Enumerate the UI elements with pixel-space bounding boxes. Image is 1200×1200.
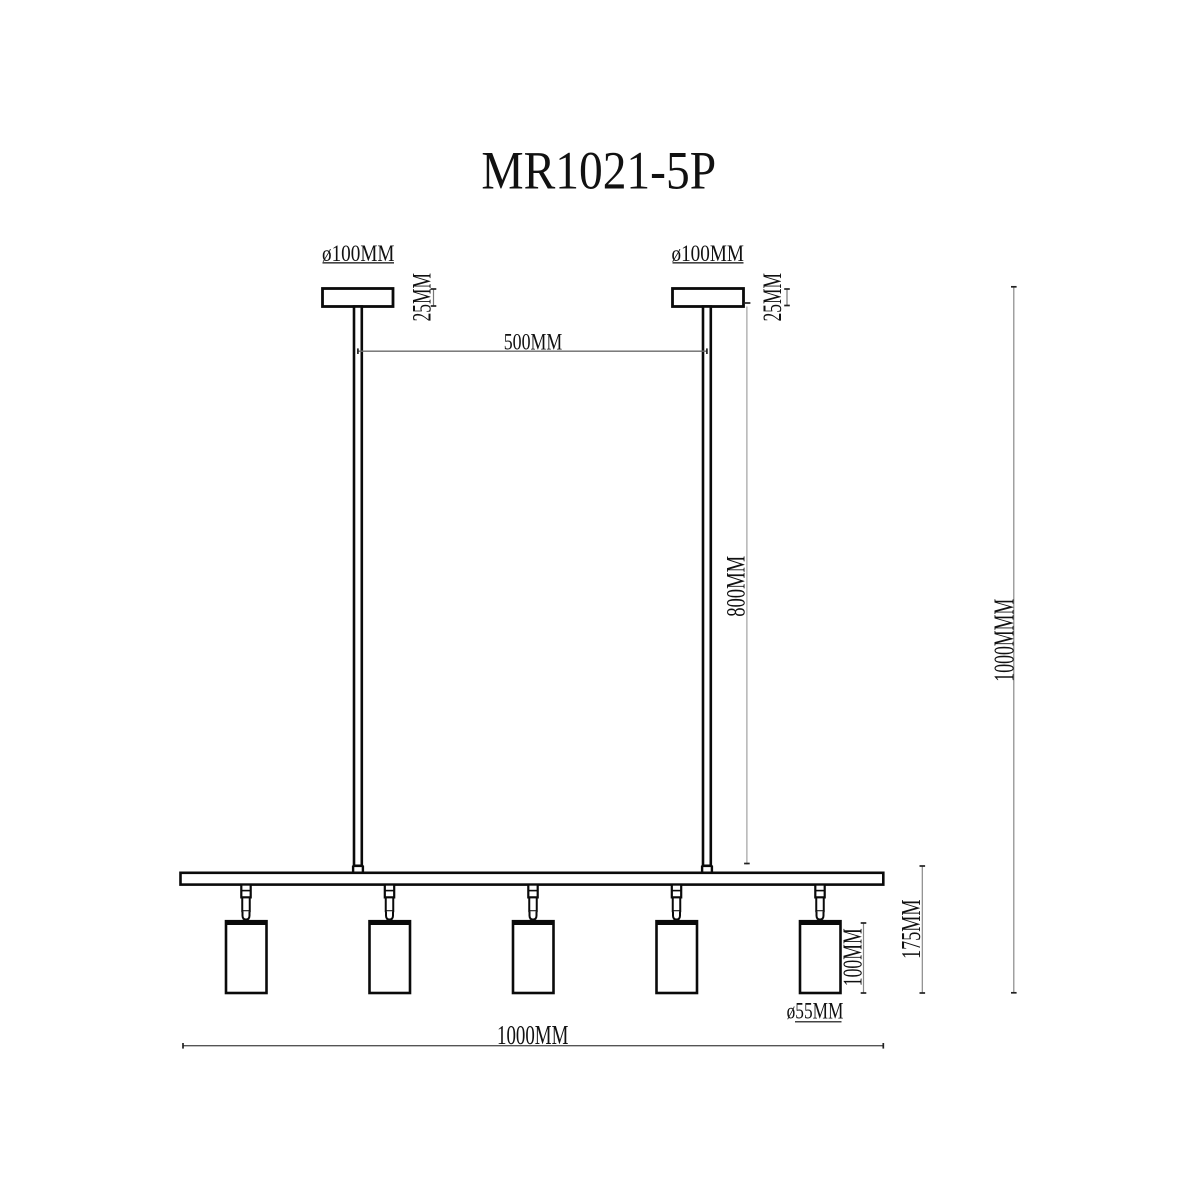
- svg-text:1000MM: 1000MM: [497, 1021, 568, 1051]
- svg-text:100MM: 100MM: [838, 928, 868, 986]
- svg-text:ø55MM: ø55MM: [787, 999, 844, 1024]
- svg-text:MR1021-5P: MR1021-5P: [481, 141, 716, 202]
- svg-text:175MM: 175MM: [895, 899, 926, 958]
- svg-text:1000MMM: 1000MMM: [989, 599, 1020, 682]
- svg-text:500MM: 500MM: [504, 328, 562, 355]
- svg-text:25MM: 25MM: [407, 273, 437, 321]
- svg-text:800MM: 800MM: [721, 556, 750, 617]
- svg-text:25MM: 25MM: [757, 273, 787, 321]
